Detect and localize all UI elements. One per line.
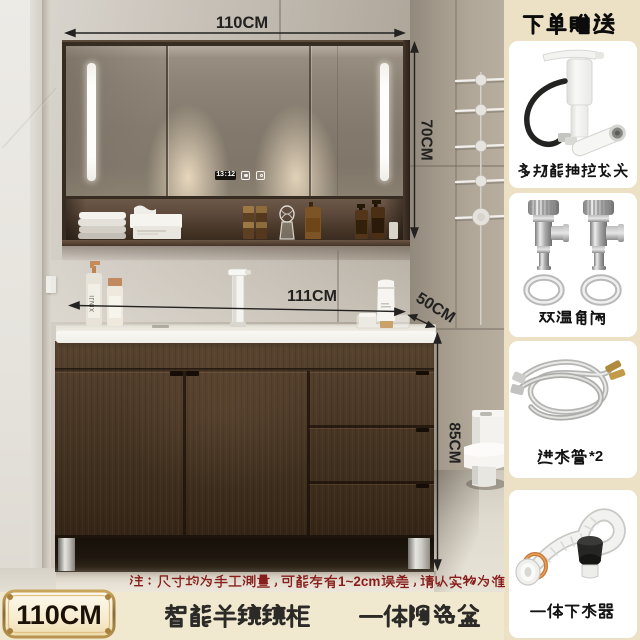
svg-text:110CM: 110CM — [16, 600, 102, 630]
svg-text:70CM: 70CM — [418, 119, 435, 160]
svg-text:111CM: 111CM — [287, 288, 337, 305]
svg-text:110CM: 110CM — [216, 14, 268, 32]
svg-text:1~2cm: 1~2cm — [338, 574, 380, 589]
svg-text:50CM: 50CM — [413, 290, 458, 327]
svg-text:85CM: 85CM — [446, 422, 463, 463]
